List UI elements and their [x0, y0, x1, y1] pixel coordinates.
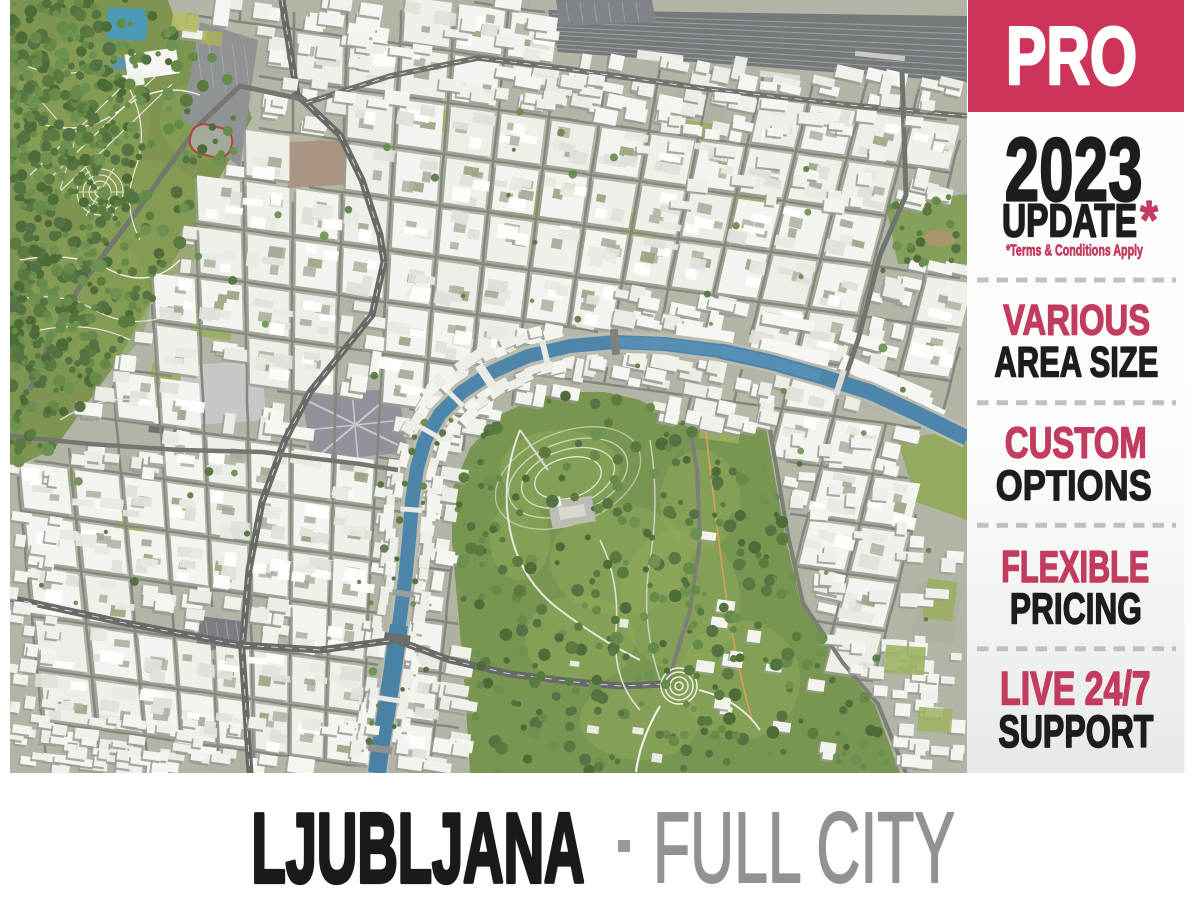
svg-text:SUPPORT: SUPPORT [998, 706, 1153, 757]
svg-text:LJUBLJANA: LJUBLJANA [252, 793, 585, 903]
svg-text:UPDATE: UPDATE [1002, 195, 1137, 247]
svg-text:FULL CITY: FULL CITY [653, 792, 955, 904]
svg-text:*: * [1140, 190, 1158, 250]
svg-text:CUSTOM: CUSTOM [1005, 420, 1147, 468]
svg-text:VARIOUS: VARIOUS [1003, 297, 1150, 344]
svg-text:AREA SIZE: AREA SIZE [994, 339, 1158, 386]
svg-text:*Terms & Conditions Apply: *Terms & Conditions Apply [1006, 243, 1143, 260]
svg-text:PRICING: PRICING [1010, 586, 1142, 634]
svg-text:OPTIONS: OPTIONS [996, 462, 1152, 509]
svg-text:PRO: PRO [1006, 11, 1137, 102]
